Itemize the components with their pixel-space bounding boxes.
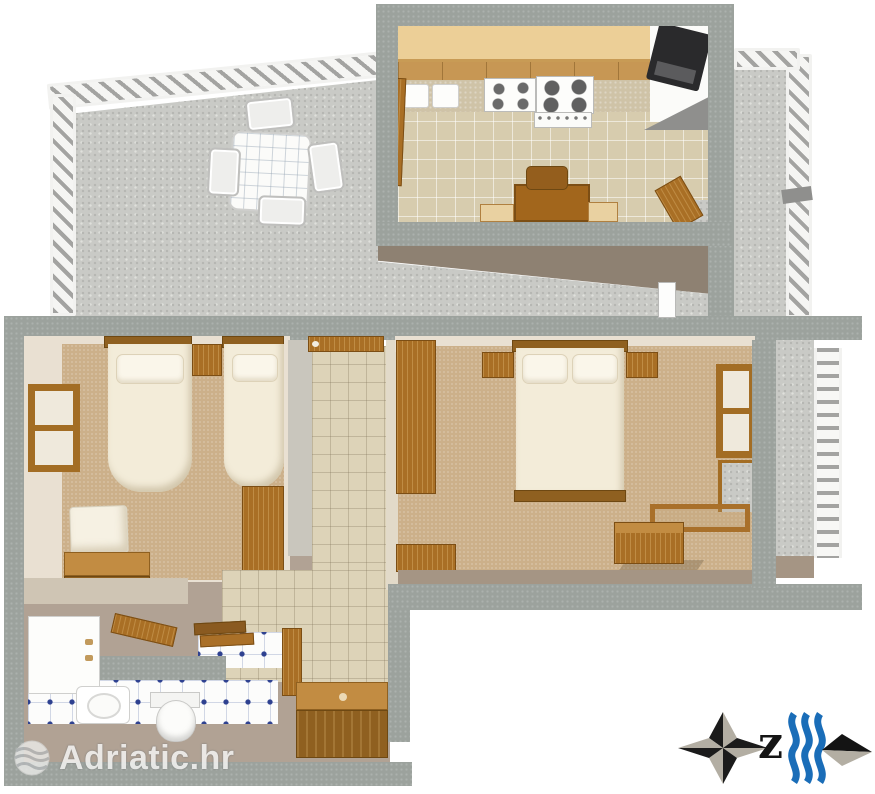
bedroom-left-side-table [69,505,129,555]
bedroom-left-dresser-top [64,552,150,576]
kitchen-sink-basin-left [402,84,429,108]
bed-single-1-pillow [116,354,184,384]
compass-west-label: z [758,722,783,766]
terrace-floor [74,80,378,318]
washbasin [76,686,130,724]
cabinet-knob [339,693,347,701]
shower-handle-1 [85,639,93,645]
kitchen-counter [398,26,654,62]
kitchen-wall-top [376,4,732,26]
washbasin-bowl [87,693,121,719]
hallway-entry-door [308,336,384,352]
patio-chair-left [207,147,241,197]
cooktop-small [484,78,536,112]
nightstand-right [626,352,658,378]
patio-chair-right [307,140,346,194]
bedroom-right-bench [396,544,456,572]
kitchen-wall-right [708,4,734,344]
floor-plan: Adriatic.hr z [0,0,875,794]
bathroom-partition-wall [96,656,226,682]
shower-handle-2 [85,655,93,661]
kitchen-chair-top [526,166,568,190]
patio-chair-top [244,96,295,133]
shower-tray [28,616,100,694]
bedroom-left-window [28,384,80,472]
bed-double-pillow-right [572,354,618,384]
cooktop-large [536,76,594,114]
kitchen-sink-basin-right [432,84,459,108]
hall-cabinet-front [296,710,388,758]
dresser-top-edge [615,523,683,533]
window-mullion [35,425,73,431]
bed-double-pillow-left [522,354,568,384]
bed-double-footboard [514,490,626,502]
bedroom-right-window [716,364,756,458]
balcony-right-floor [776,340,814,558]
toilet-bowl [156,700,196,742]
balcony-top-floor [734,50,786,318]
oven-front [534,112,592,128]
terrace-railing-left [50,94,76,316]
kitchen-wall-left [376,4,398,246]
balcony-right-south-face [776,556,814,578]
kitchen-chair-right [588,202,618,222]
door-handle [312,341,319,347]
hall-cabinet-top [296,682,388,710]
balcony-right-railing [814,348,842,558]
balcony-right-west-wall [752,340,776,588]
terrace-door [658,282,676,318]
bedroom-right-wardrobe [396,340,436,494]
kitchen-chair-left [480,204,514,222]
direction-diamond-icon [822,728,874,770]
balcony-top-railing-end [734,48,800,70]
bedroom-left-south-wall-face [20,578,188,604]
bedroom-right-dresser [614,522,684,564]
patio-chair-bottom [257,195,306,227]
nightstand-between-beds [192,344,222,376]
compass-rose-icon [676,710,770,786]
hallway-west-wall [288,340,312,556]
refrigerator-panel [654,61,696,84]
kitchen-wall-bottom [376,222,732,246]
apartment-wall-bottom [4,762,412,786]
apartment-wall-bottom-right [390,584,862,610]
nightstand-left [482,352,514,378]
window-mullion [723,408,749,414]
bed-single-2-pillow [232,354,278,382]
apartment-wall-left [4,316,24,786]
bedroom-left-wardrobe [242,486,284,572]
